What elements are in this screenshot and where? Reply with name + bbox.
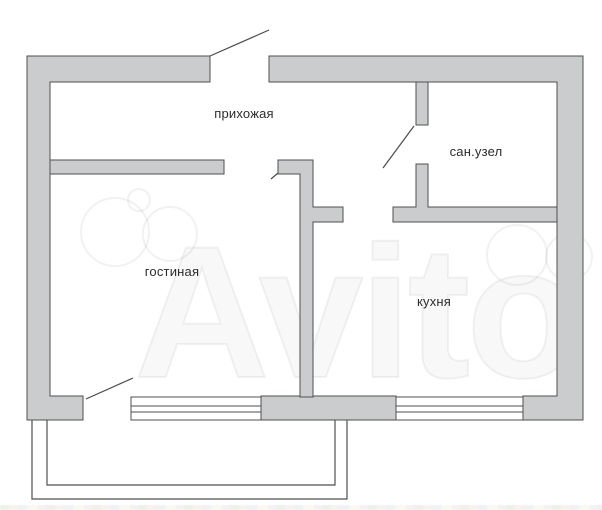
- balcony-door-swing: [86, 378, 133, 399]
- wall-bathroom-kitchen: [393, 164, 557, 222]
- room-label-living-room: гостиная: [135, 264, 209, 280]
- room-label-hallway: прихожая: [203, 106, 285, 122]
- room-label-bathroom: сан.узел: [439, 144, 513, 160]
- living-room-window: [131, 397, 261, 420]
- wall-hallway-living: [50, 160, 224, 174]
- floor-plan-image: Avito: [0, 0, 602, 510]
- floor-plan-drawing: [0, 0, 602, 510]
- bottom-edge-artifacts: [0, 505, 602, 510]
- wall-bathroom-left-upper: [416, 82, 428, 125]
- wall-living-kitchen-divider: [278, 160, 343, 397]
- wall-left-outer: [27, 56, 210, 420]
- balcony-outer-wall: [32, 420, 347, 499]
- wall-end-cap: [271, 173, 278, 179]
- kitchen-window: [396, 397, 523, 420]
- entrance-door-swing: [210, 30, 269, 56]
- wall-bottom-middle: [261, 396, 396, 420]
- room-label-kitchen: кухня: [404, 294, 464, 310]
- bathroom-door-swing: [383, 126, 414, 168]
- balcony-inner-wall: [47, 420, 335, 485]
